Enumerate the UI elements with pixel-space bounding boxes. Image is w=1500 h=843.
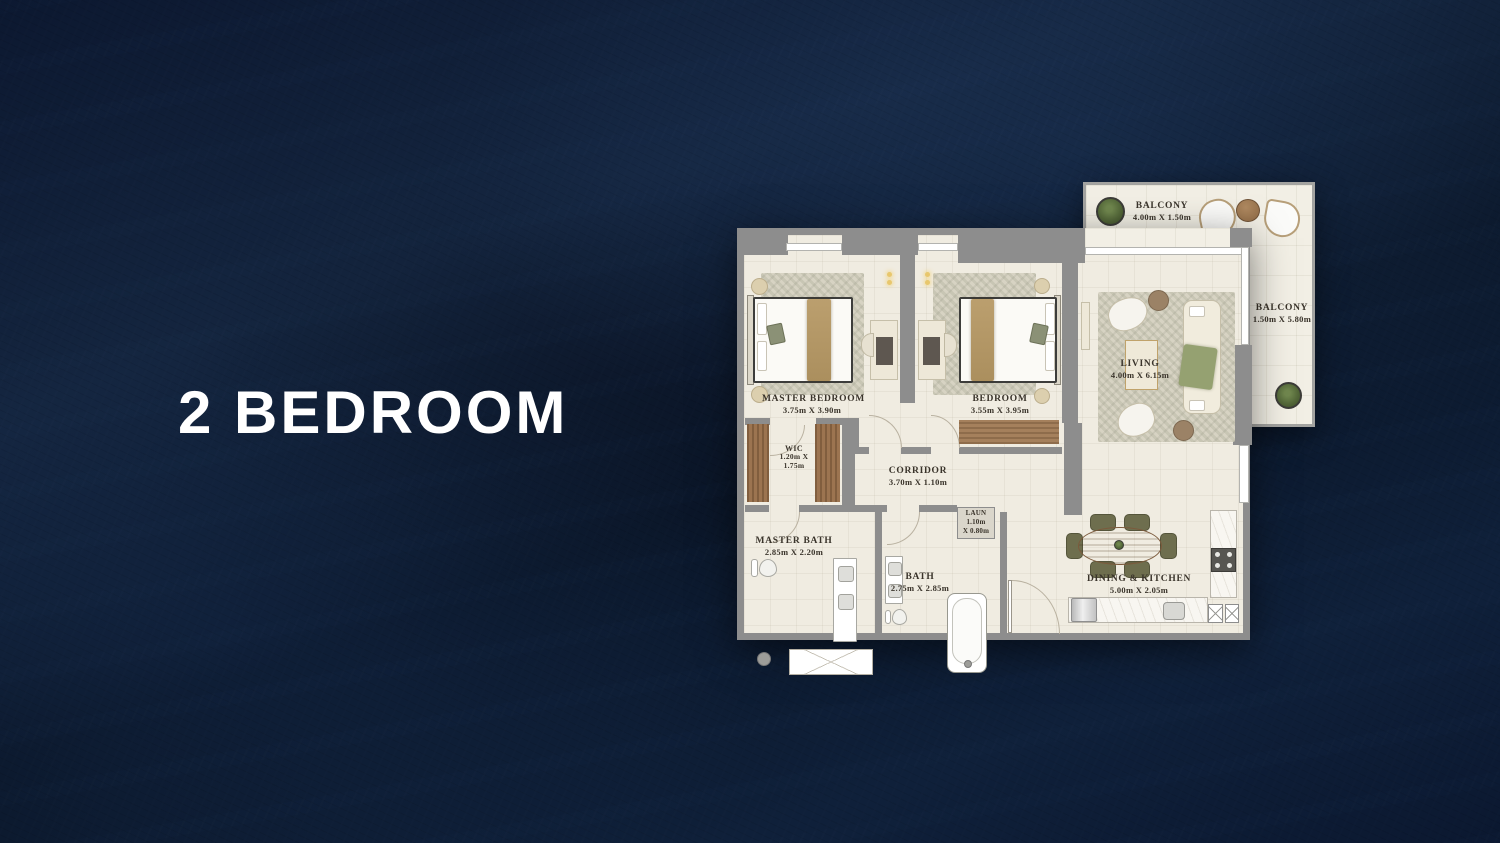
wall (1000, 512, 1007, 633)
desk-chair (861, 333, 874, 357)
desk-panel (876, 337, 893, 365)
room-name: MASTER BATH (754, 536, 834, 547)
wall (1233, 345, 1252, 445)
wall-lamp-icon (925, 280, 930, 285)
plant-icon (1275, 382, 1302, 409)
wall (859, 447, 869, 454)
wall-lamp-icon (887, 280, 892, 285)
room-name: CORRIDOR (868, 466, 968, 477)
window (1241, 247, 1249, 345)
shower-icon (757, 652, 771, 666)
room-dims: 4.00m X 1.50m (1102, 212, 1222, 222)
room-name: BEDROOM (950, 394, 1050, 405)
ottoman-icon (1034, 278, 1050, 294)
wall (1230, 228, 1252, 247)
room-dims: 1.75m (754, 462, 834, 471)
wic-label: WIC 1.20m X 1.75m (754, 444, 834, 471)
room-dims: X 0.80m (957, 527, 995, 536)
master-bedroom-label: MASTER BEDROOM 3.75m X 3.90m (762, 394, 862, 415)
wall (1062, 255, 1078, 423)
room-dims: 3.55m X 3.95m (950, 405, 1050, 415)
window (1085, 247, 1242, 255)
pouf-icon (1173, 420, 1194, 441)
bath-label: BATH 2.75m X 2.85m (880, 572, 960, 593)
toilet-icon (759, 559, 777, 577)
wall (900, 255, 915, 403)
room-dims: 2.85m X 2.20m (754, 547, 834, 557)
dining-chair (1160, 533, 1177, 559)
bed-throw (971, 299, 994, 381)
room-name: BATH (880, 572, 960, 583)
toilet-tank (885, 610, 891, 624)
window (1239, 445, 1249, 503)
room-name: BALCONY (1102, 201, 1222, 212)
toilet-tank (751, 559, 758, 577)
floor-plan: BALCONY 4.00m X 1.50m BALCONY 1.50m X 5.… (735, 178, 1317, 643)
wall-lamp-icon (925, 272, 930, 277)
dryer-icon (1225, 604, 1239, 623)
laundry-label: LAUN 1.10m X 0.80m (957, 509, 995, 536)
corridor-label: CORRIDOR 3.70m X 1.10m (868, 466, 968, 487)
ottoman-icon (751, 278, 768, 295)
bath-mat (789, 649, 873, 675)
fridge-icon (1071, 598, 1097, 622)
pillow (1045, 341, 1055, 371)
room-dims: 3.70m X 1.10m (868, 477, 968, 487)
page-background: 2 BEDROOM BALCONY 4.00m X 1.50m BALCONY … (0, 0, 1500, 843)
room-name: LAUN (957, 509, 995, 518)
wall (1064, 423, 1082, 515)
room-dims: 1.10m (957, 518, 995, 527)
sink-icon (1163, 602, 1185, 620)
console (1081, 302, 1090, 350)
balcony-floor-patch (1085, 228, 1249, 247)
tub-drain (964, 660, 972, 668)
room-dims: 3.75m X 3.90m (762, 405, 862, 415)
wall (901, 447, 931, 454)
burner (1215, 552, 1220, 557)
washer-icon (1208, 604, 1223, 623)
pouf-icon (1148, 290, 1169, 311)
wall (745, 505, 769, 512)
entry-door-leaf (1008, 580, 1012, 633)
round-table-icon (1236, 199, 1260, 222)
window (786, 243, 842, 251)
room-dims: 4.00m X 6.15m (1090, 370, 1190, 380)
stove-icon (1211, 548, 1236, 572)
sink-icon (838, 566, 854, 582)
sofa-pillow (1189, 306, 1205, 317)
balcony-top-label: BALCONY 4.00m X 1.50m (1102, 201, 1222, 222)
wall (959, 447, 1062, 454)
room-dims: 2.75m X 2.85m (880, 583, 960, 593)
burner (1227, 563, 1232, 568)
apartment-body: MASTER BEDROOM 3.75m X 3.90m BEDROOM 3.5… (737, 228, 1250, 640)
room-name: DINING & KITCHEN (1084, 574, 1194, 585)
bed-throw (807, 299, 831, 381)
toilet-icon (892, 609, 907, 625)
dresser (959, 420, 1059, 444)
pillow (757, 303, 767, 335)
table-plant-icon (1114, 540, 1124, 550)
master-bed (753, 297, 853, 383)
wall-lamp-icon (887, 272, 892, 277)
desk-panel (923, 337, 940, 365)
wall (919, 505, 957, 512)
wall (737, 228, 788, 255)
sofa-pillow (1189, 400, 1205, 411)
pillow (757, 341, 767, 371)
wall (842, 425, 855, 505)
window (918, 243, 958, 251)
wall (799, 505, 887, 512)
room-name: LIVING (1090, 359, 1190, 370)
bathtub-inner (952, 598, 982, 664)
living-label: LIVING 4.00m X 6.15m (1090, 359, 1190, 380)
lounge-chair-icon (1261, 198, 1303, 240)
burner (1215, 563, 1220, 568)
sink-icon (838, 594, 854, 610)
master-bath-label: MASTER BATH 2.85m X 2.20m (754, 536, 834, 557)
room-dims: 5.00m X 2.05m (1084, 585, 1194, 595)
room-name: MASTER BEDROOM (762, 394, 862, 405)
bedroom-label: BEDROOM 3.55m X 3.95m (950, 394, 1050, 415)
page-title: 2 BEDROOM (178, 378, 568, 447)
wall (842, 228, 918, 255)
dining-kitchen-label: DINING & KITCHEN 5.00m X 2.05m (1084, 574, 1194, 595)
burner (1227, 552, 1232, 557)
